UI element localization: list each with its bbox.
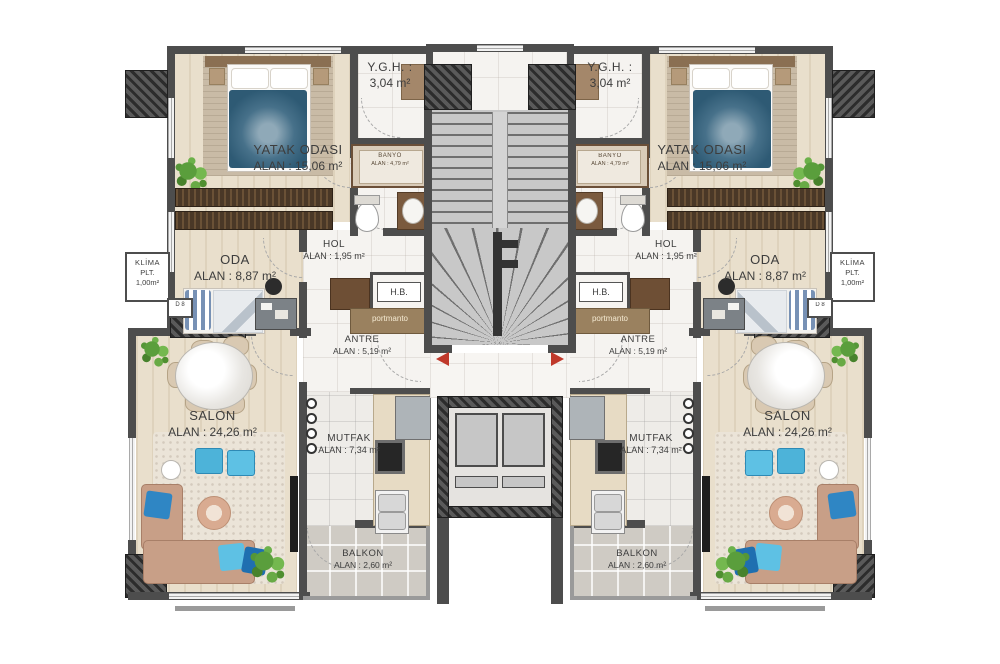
stair-flight-right xyxy=(508,112,568,228)
stair-core-pillar xyxy=(493,232,502,336)
shaft-wall-below-right xyxy=(551,518,563,604)
elevator-counterweight xyxy=(455,476,498,488)
elevator-counterweight xyxy=(502,476,545,488)
elevator-lobby-floor xyxy=(430,353,570,398)
corridor-window xyxy=(477,45,523,51)
direction-arrow-left-icon xyxy=(436,352,449,366)
direction-arrow-right-icon xyxy=(551,352,564,366)
elevator-wall-right xyxy=(551,396,563,518)
shaft-wall-below-left xyxy=(437,518,449,604)
stair-wall-right xyxy=(568,110,576,353)
column-core-right xyxy=(528,64,576,110)
elevator-wall-bottom xyxy=(437,506,563,518)
elevator-wall-left xyxy=(437,396,449,518)
central-core xyxy=(0,0,1000,664)
floor-plan: Y.G.H. : 3,04 m² YATAK ODASI ALAN : 15,0… xyxy=(0,0,1000,664)
elevator-car xyxy=(455,413,498,467)
column-core-left xyxy=(424,64,472,110)
stair-flight-left xyxy=(432,112,492,228)
stair-landing xyxy=(492,112,508,228)
elevator-car xyxy=(502,413,545,467)
elevator-wall-top xyxy=(437,396,563,408)
stair-core-arm xyxy=(502,240,518,248)
stair-wall-left xyxy=(424,110,432,353)
stair-core-arm xyxy=(502,260,518,268)
